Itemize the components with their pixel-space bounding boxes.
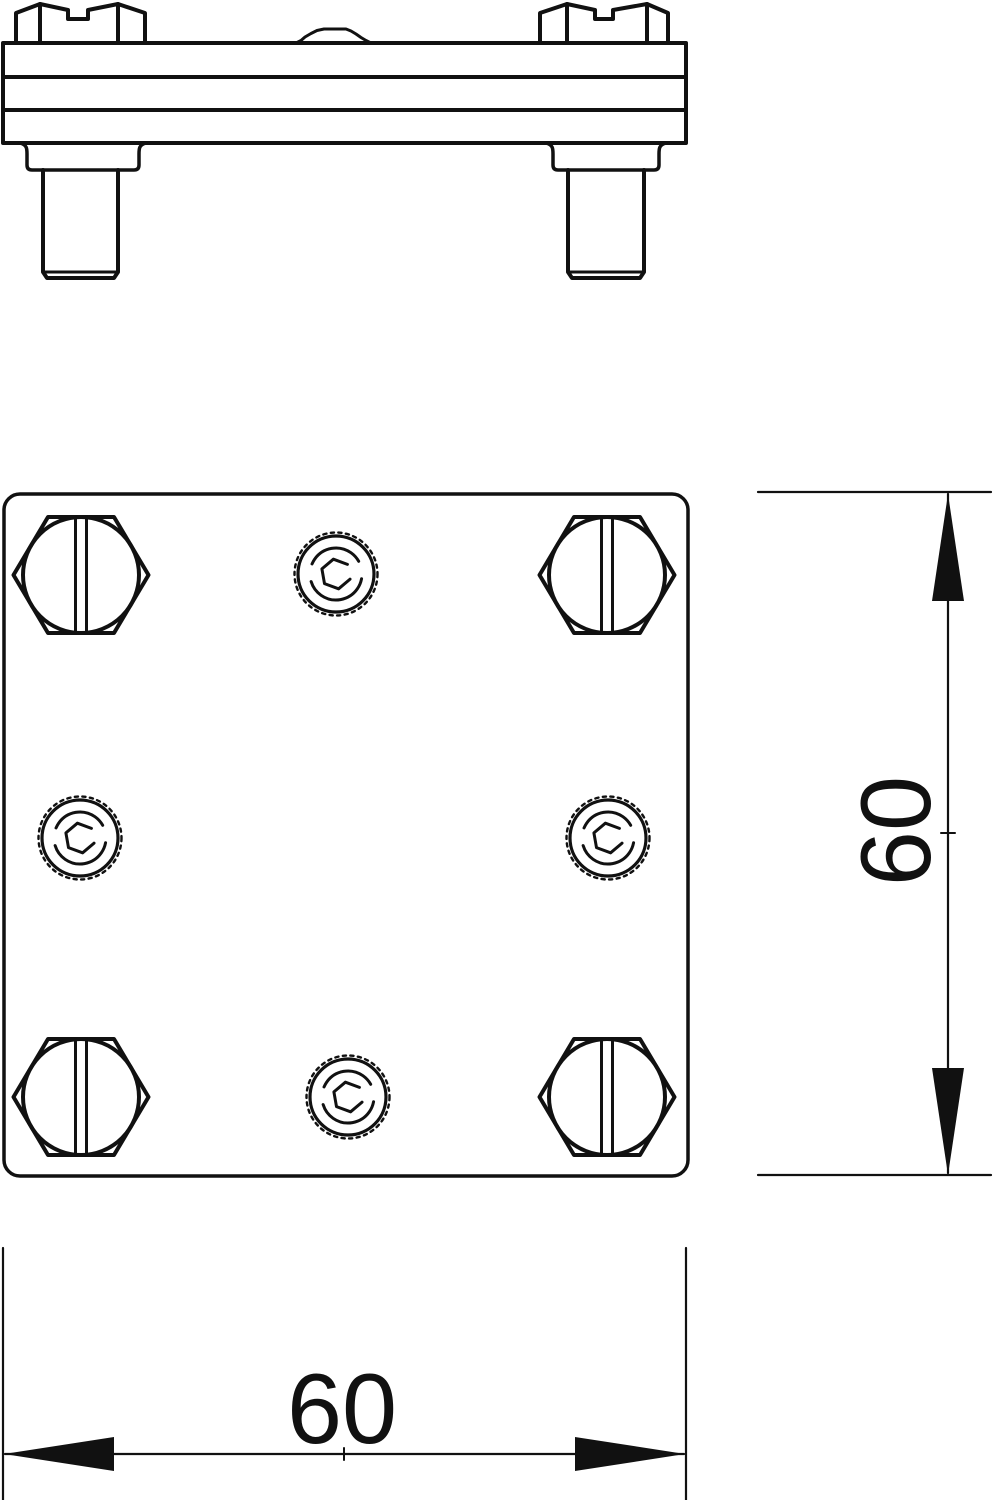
screw-head-left-outline (16, 4, 145, 43)
hex-bolt-bottom-left (14, 1039, 149, 1155)
plate-outline-plan (4, 494, 688, 1176)
hex-bolt-top-left (14, 517, 149, 633)
bolt-right-side (546, 143, 666, 278)
knurled-disc-bottom-center (307, 1056, 390, 1139)
width-arrow-left-icon (4, 1437, 114, 1471)
width-dimension: 60 (3, 1248, 686, 1500)
bolt-left-collar (20, 143, 146, 170)
hex-bolt-top-right (540, 517, 675, 633)
knurled-disc-top-center (295, 533, 378, 616)
knurled-disc-middle-right (567, 797, 650, 880)
height-arrow-up-icon (932, 494, 964, 601)
technical-drawing: 60 60 (0, 0, 993, 1500)
height-arrow-down-icon (932, 1068, 964, 1175)
bolt-left-side (20, 143, 146, 278)
hex-bolt-bottom-right (540, 1039, 675, 1155)
height-dimension-label: 60 (840, 776, 951, 886)
bolt-right-shaft (568, 170, 644, 278)
screw-head-left-side (16, 4, 145, 43)
width-arrow-right-icon (575, 1437, 685, 1471)
bolt-right-collar (546, 143, 666, 170)
plan-view (4, 494, 688, 1176)
knurled-bump-side (296, 29, 373, 43)
screw-head-right-side (540, 4, 668, 43)
side-view (3, 4, 686, 278)
knurled-disc-middle-left (39, 797, 122, 880)
bolt-left-shaft (43, 170, 118, 278)
drawing-canvas: 60 60 (0, 0, 993, 1500)
height-dimension: 60 (758, 492, 991, 1175)
plate-stack-side (3, 43, 686, 143)
plate-outline-side (3, 43, 686, 143)
width-dimension-label: 60 (287, 1353, 397, 1464)
